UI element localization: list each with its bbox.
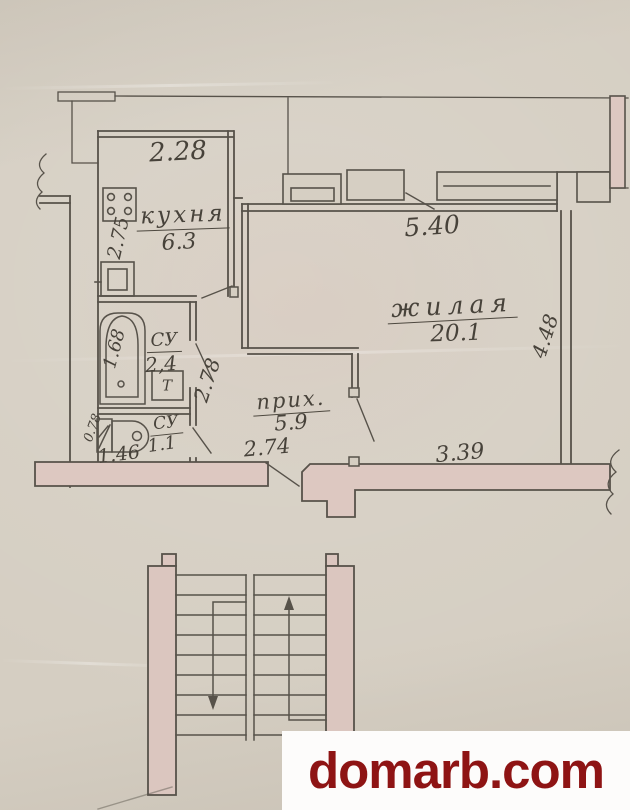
room-label-kitchen: кухня <box>136 202 230 231</box>
watermark-text: domarb.com <box>308 741 604 800</box>
dim-wc-width: 1.46 <box>97 443 141 467</box>
pencil-mark <box>98 787 172 809</box>
area-living: 20.1 <box>430 322 482 347</box>
heater-label: Т <box>162 379 172 394</box>
stair-arrow-down <box>208 602 246 710</box>
bottom-wall <box>35 462 610 517</box>
door-swings <box>193 193 434 486</box>
window-blocks <box>283 96 625 204</box>
area-bath: 2,4 <box>144 353 177 375</box>
watermark-band: domarb.com <box>282 731 630 810</box>
dim-hall-width: 2.74 <box>243 436 291 461</box>
dim-living-width: 5.40 <box>403 212 460 241</box>
stair-steps <box>176 575 326 740</box>
area-wc: 1.1 <box>147 434 178 456</box>
area-hall: 5.9 <box>274 411 309 434</box>
room-label-bath: СУ <box>146 331 181 353</box>
floorplan-photo: 2.28 кухня 6.3 2.75 5.40 жилая 20.1 4.48… <box>0 0 630 810</box>
sink-icon <box>95 262 134 296</box>
area-kitchen: 6.3 <box>161 231 197 255</box>
dim-living-bottom: 3.39 <box>435 441 486 467</box>
dim-kitchen-width: 2.28 <box>148 138 207 167</box>
